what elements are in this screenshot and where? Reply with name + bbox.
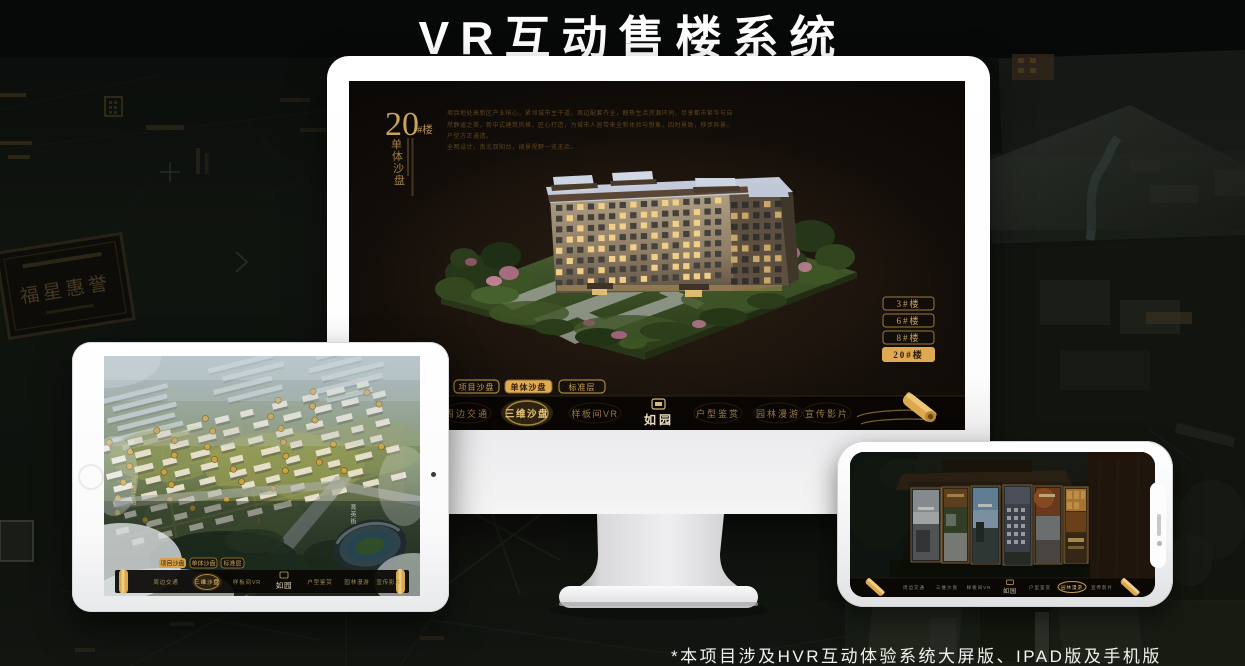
svg-text:#楼: #楼 [417,123,433,136]
svg-text:然静谧之美，新中式建筑风格，匠心打造，为城市人居带来全新体验: 然静谧之美，新中式建筑风格，匠心打造，为城市人居带来全新体验与想象，四时景致，移… [447,121,733,129]
svg-text:园林漫游: 园林漫游 [344,578,369,586]
svg-text:三维沙盘: 三维沙盘 [194,578,219,586]
svg-text:户型方正通透。: 户型方正通透。 [447,132,493,140]
svg-text:单体沙盘: 单体沙盘 [191,560,215,568]
svg-text:育英街: 育英街 [349,503,356,525]
svg-text:项目地处高新区产业核心，紧邻城市主干道，周边配套齐全，醇熟生: 项目地处高新区产业核心，紧邻城市主干道，周边配套齐全，醇熟生活资源环伺，尽享都市… [447,109,733,117]
svg-text:周边交通: 周边交通 [903,584,925,591]
svg-text:项目沙盘: 项目沙盘 [459,382,495,392]
svg-text:宣传影片: 宣传影片 [805,408,849,419]
svg-text:如园: 如园 [276,580,293,590]
svg-text:标准层: 标准层 [223,560,241,568]
svg-text:盘: 盘 [394,173,405,187]
svg-text:单体沙盘: 单体沙盘 [511,382,547,392]
svg-text:20#楼: 20#楼 [893,349,924,360]
svg-text:单: 单 [391,138,402,151]
svg-text:园林漫游: 园林漫游 [756,408,800,419]
svg-text:三维沙盘: 三维沙盘 [936,584,958,591]
svg-text:户型鉴赏: 户型鉴赏 [696,408,740,419]
svg-text:样板间VR: 样板间VR [967,584,992,591]
svg-text:户型鉴赏: 户型鉴赏 [1029,584,1051,591]
svg-text:6#楼: 6#楼 [896,315,920,326]
svg-text:领秀三路: 领秀三路 [129,477,136,506]
svg-text:20: 20 [385,106,419,143]
svg-text:周边交通: 周边交通 [153,578,178,586]
svg-text:沙: 沙 [393,162,404,175]
svg-text:户型鉴赏: 户型鉴赏 [307,578,332,586]
svg-text:宣传影片: 宣传影片 [376,578,401,586]
svg-text:如园: 如园 [1003,587,1017,595]
svg-text:如园: 如园 [644,412,674,427]
svg-text:样板间VR: 样板间VR [233,578,261,586]
svg-text:3#楼: 3#楼 [896,298,920,309]
svg-text:体: 体 [392,149,403,163]
svg-text:周边交通: 周边交通 [445,408,489,419]
svg-text:项目沙盘: 项目沙盘 [160,560,184,568]
svg-text:标准层: 标准层 [569,382,596,392]
svg-text:园林漫游: 园林漫游 [1061,584,1083,591]
svg-text:宣传影片: 宣传影片 [1091,584,1113,591]
svg-text:样板间VR: 样板间VR [571,408,618,419]
svg-text:三维沙盘: 三维沙盘 [505,408,549,420]
svg-text:8#楼: 8#楼 [896,332,920,343]
